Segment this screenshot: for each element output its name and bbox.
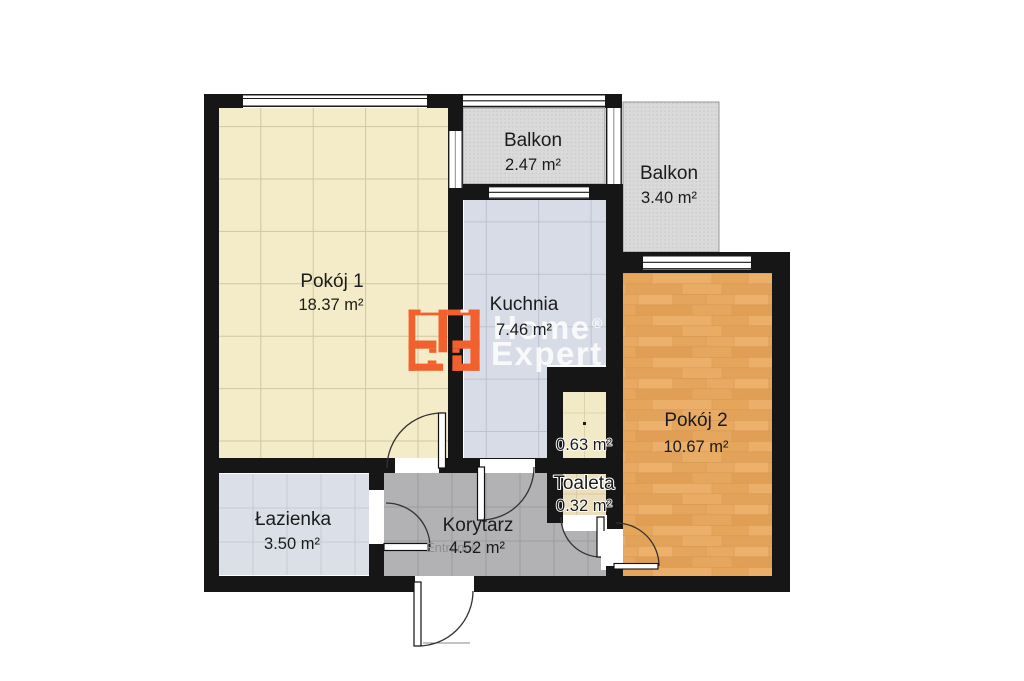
svg-text:0.32 m²: 0.32 m² — [556, 497, 612, 515]
svg-text:3.50 m²: 3.50 m² — [264, 535, 320, 553]
svg-text:Pokój 1: Pokój 1 — [300, 271, 363, 292]
svg-text:7.46 m²: 7.46 m² — [496, 321, 552, 339]
svg-text:0.63 m²: 0.63 m² — [556, 436, 612, 454]
svg-text:Balkon: Balkon — [504, 130, 562, 151]
svg-text:3.40 m²: 3.40 m² — [641, 189, 697, 207]
svg-text:Balkon: Balkon — [640, 163, 698, 184]
svg-text:10.67 m²: 10.67 m² — [663, 438, 729, 456]
svg-text:Toaleta: Toaleta — [553, 473, 615, 494]
svg-text:Pokój 2: Pokój 2 — [664, 410, 727, 431]
svg-text:Kuchnia: Kuchnia — [490, 294, 559, 315]
svg-text:18.37 m²: 18.37 m² — [298, 296, 364, 314]
svg-text:4.52 m²: 4.52 m² — [449, 539, 505, 557]
svg-text:Korytarz: Korytarz — [443, 515, 514, 536]
svg-text:2.47 m²: 2.47 m² — [505, 156, 561, 174]
svg-text:®: ® — [592, 315, 603, 331]
svg-text:Łazienka: Łazienka — [255, 509, 331, 530]
svg-text:Expert: Expert — [491, 335, 603, 372]
